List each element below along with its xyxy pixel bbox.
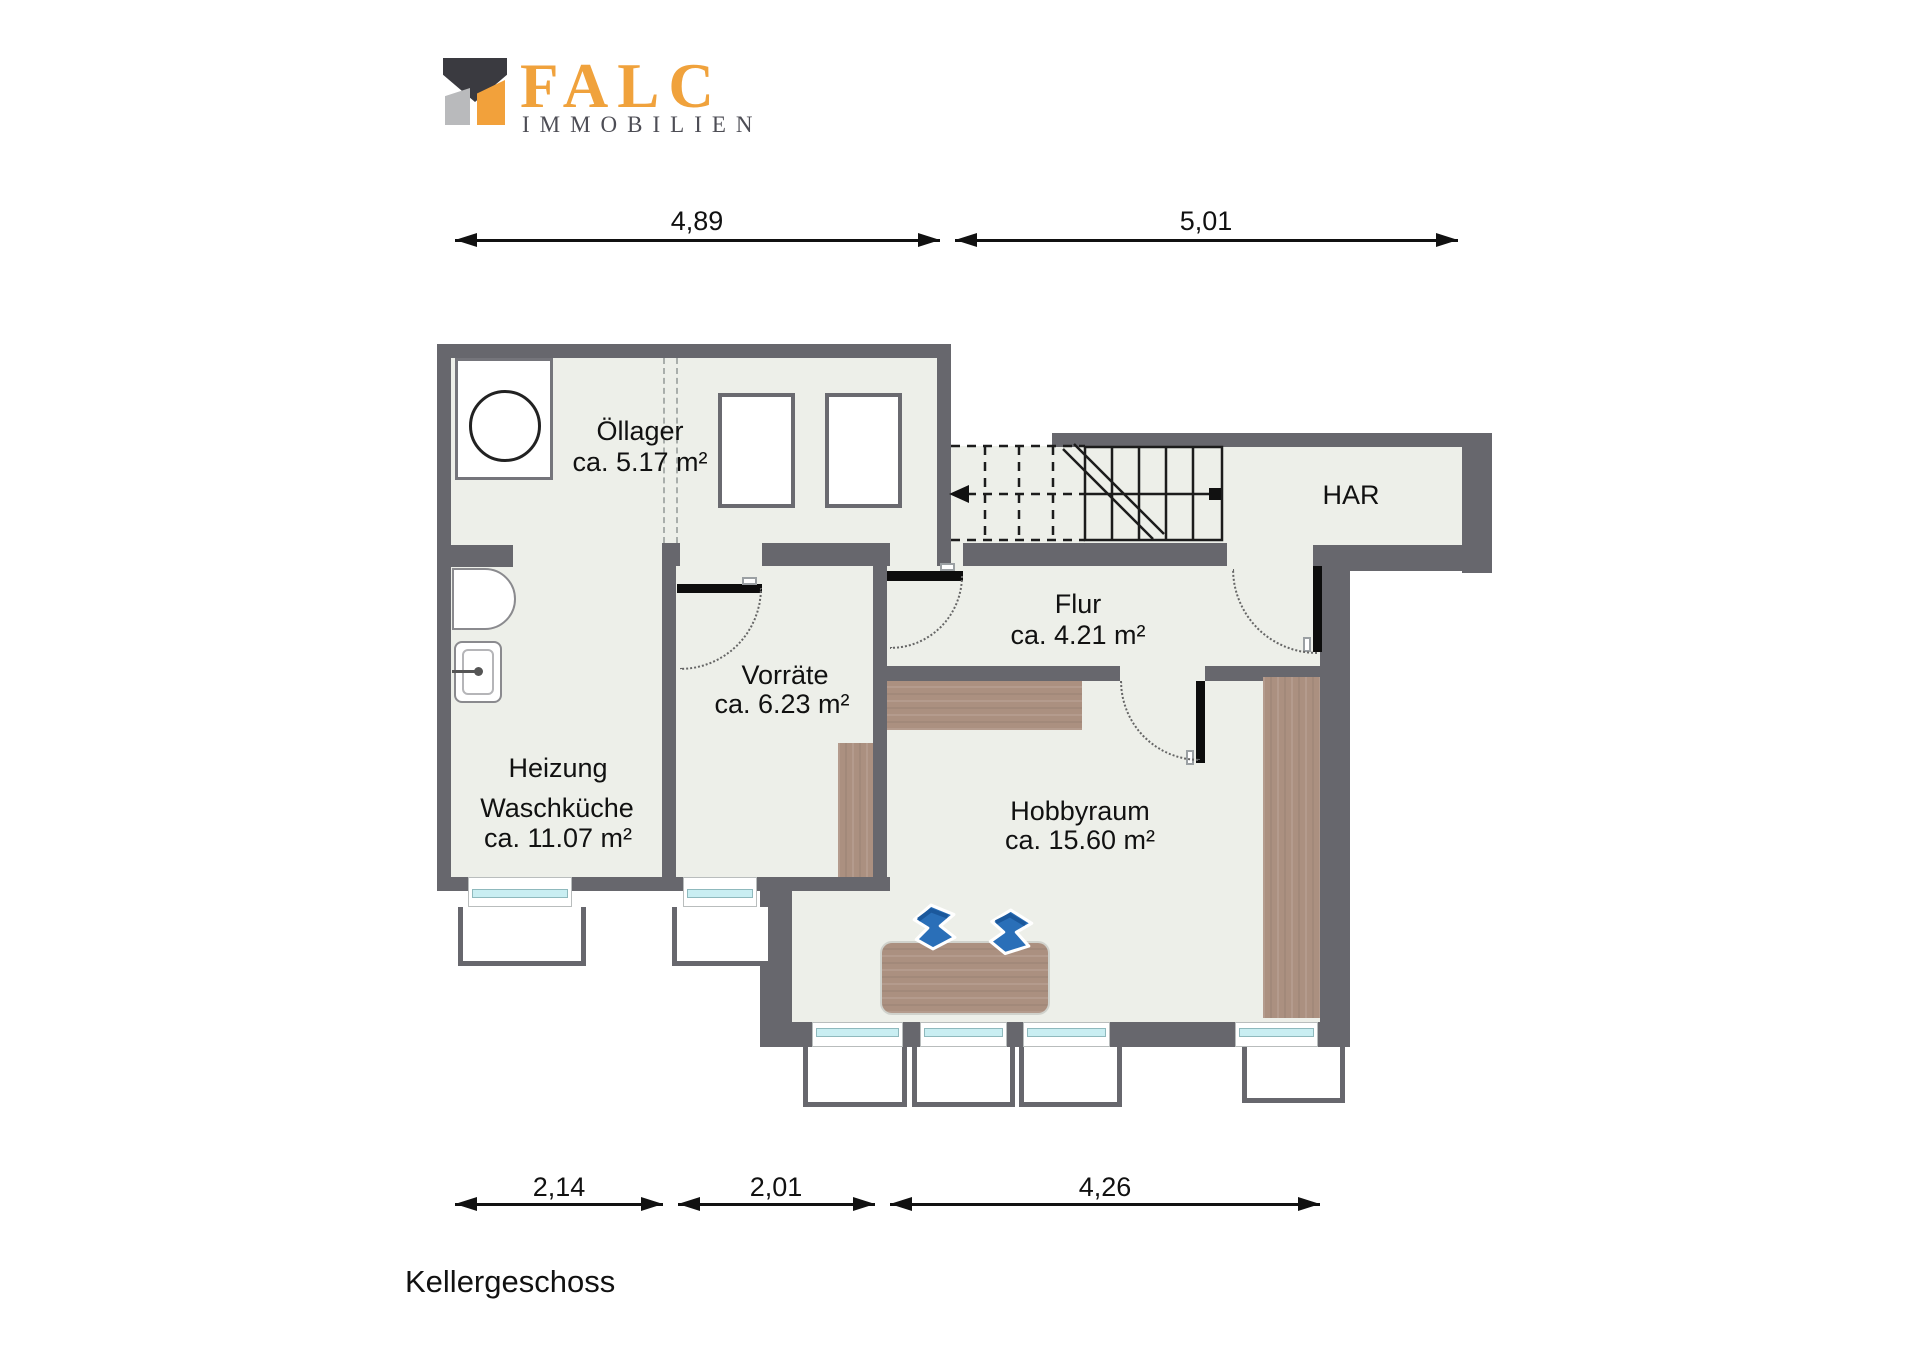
window-glass xyxy=(816,1028,899,1037)
wall-segment xyxy=(1110,1022,1235,1047)
room-label-hobbyraum: Hobbyraum xyxy=(1010,796,1150,827)
light-well xyxy=(672,907,773,966)
logo-subtitle-text: IMMOBILIEN xyxy=(522,112,763,138)
office-chair-icon xyxy=(980,904,1038,960)
light-well xyxy=(803,1047,907,1107)
window-glass xyxy=(924,1028,1003,1037)
room-area-vorraete: ca. 6.23 m² xyxy=(714,689,849,720)
window-glass xyxy=(1027,1028,1106,1037)
floorplan-page: FALC IMMOBILIEN 4,89 5,01 xyxy=(0,0,1920,1357)
wall-segment xyxy=(437,344,451,891)
staircase-icon xyxy=(937,433,1230,545)
room-label-flur: Flur xyxy=(1055,589,1102,620)
wall-segment xyxy=(1320,571,1350,1047)
light-well xyxy=(458,907,586,966)
wall-segment xyxy=(903,1022,920,1047)
window-glass xyxy=(1239,1028,1314,1037)
office-chair-icon xyxy=(908,903,958,951)
room-label-waschkueche: Waschküche xyxy=(480,793,634,824)
wall-segment xyxy=(1313,545,1492,571)
wall-segment xyxy=(437,344,951,358)
room-area-heizung: ca. 11.07 m² xyxy=(484,823,632,854)
oil-tank-icon xyxy=(825,393,902,508)
room-label-oellager: Öllager xyxy=(596,416,683,447)
wall-segment xyxy=(572,877,683,891)
floor-title: Kellergeschoss xyxy=(405,1264,615,1300)
wall-segment xyxy=(873,566,887,891)
room-area-oellager: ca. 5.17 m² xyxy=(572,447,707,478)
wall-segment xyxy=(437,877,468,891)
wall-segment xyxy=(1007,1022,1023,1047)
dimension-label: 2,01 xyxy=(750,1172,803,1203)
door-stop xyxy=(742,577,757,585)
oil-tank-icon xyxy=(718,393,795,508)
floor-hobbyraum xyxy=(792,891,887,1022)
wall-segment xyxy=(437,545,513,567)
wall-segment xyxy=(762,543,890,566)
window-glass xyxy=(687,889,753,898)
wall-segment xyxy=(757,877,890,891)
floor-door-gap xyxy=(1120,666,1205,681)
wall-segment xyxy=(1318,1022,1350,1047)
washing-machine-icon xyxy=(455,358,553,480)
sink-icon xyxy=(454,641,502,703)
wall-segment xyxy=(662,566,676,891)
wall-segment xyxy=(662,543,680,566)
light-well xyxy=(1019,1047,1122,1107)
dimension-label: 4,26 xyxy=(1079,1172,1132,1203)
dimension-label: 5,01 xyxy=(1180,206,1233,237)
room-label-vorraete: Vorräte xyxy=(741,660,828,691)
room-label-har: HAR xyxy=(1322,480,1379,511)
basin-counter-icon xyxy=(452,568,516,630)
wardrobe-icon xyxy=(1263,677,1320,1018)
shelf-icon xyxy=(838,743,873,877)
room-label-heizung: Heizung xyxy=(508,753,607,784)
dimension-label: 4,89 xyxy=(671,206,724,237)
room-area-flur: ca. 4.21 m² xyxy=(1010,620,1145,651)
wall-segment xyxy=(760,1022,812,1047)
wall-segment xyxy=(963,543,1227,566)
light-well xyxy=(1242,1047,1345,1103)
floor-door-gap xyxy=(680,543,762,566)
sideboard-icon xyxy=(887,681,1082,730)
window-glass xyxy=(472,889,568,898)
room-area-hobbyraum: ca. 15.60 m² xyxy=(1005,825,1155,856)
light-well xyxy=(912,1047,1015,1107)
wall-segment xyxy=(873,666,1120,681)
door-stop xyxy=(940,563,955,571)
dimension-label: 2,14 xyxy=(533,1172,586,1203)
